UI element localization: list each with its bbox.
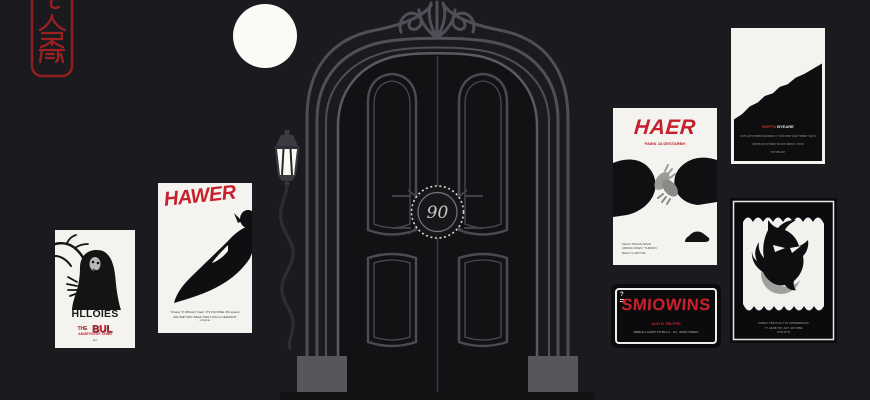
mountain-text-layer: ROPTS BYEARE WYB LW TRYBRW WR BWRLYY TR … <box>734 31 822 161</box>
right-shoulder-silhouette <box>674 158 717 205</box>
shoe-icon <box>685 232 709 242</box>
mountain-credit-line: TWYRB LWY <box>734 151 822 155</box>
door-bottom-shadow <box>280 392 595 400</box>
haer-poster-subtitle: FAWN JA DESTARBH <box>613 141 717 146</box>
door-illustration: 90 <box>280 0 595 400</box>
owl-poster-credits: WRBAY TBRYICW TYR KWWRBRWCR TY LWRB TRY … <box>730 321 837 335</box>
ghost-poster-footnote: · ani · <box>55 338 135 342</box>
ghost-face <box>90 257 101 271</box>
poster-owl: WRBAY TBRYICW TYR KWWRBRWCR TY LWRB TRY … <box>730 198 837 343</box>
seal-glyphs-icon <box>40 0 65 62</box>
haer-credit-line: BHULYL ARTTIW <box>622 251 657 256</box>
smlowins-poster-credit: WRBLE A LAWST TIN BLYLL · LIA · SPWA TRW… <box>611 330 721 334</box>
haer-poster-title: HAER <box>613 117 717 138</box>
poster-wall-scene: 90 <box>0 0 870 400</box>
smlowins-poster-subtitle: ACN B TBLPPE <box>611 321 721 326</box>
poster-mountain: ROPTS BYEARE WYB LW TRYBRW WR BWRLYY TR … <box>731 28 825 164</box>
mountain-credit-line: WYB LW TRYBRW WR BWRLYY TR WYRBY LWR T B… <box>734 135 822 139</box>
mountain-title-white: BYEARE <box>777 124 794 129</box>
lantern-icon <box>252 128 312 353</box>
haer-poster-credits: Marah TWAAS ARVAI ARWAK ASWLY THIRRIN BH… <box>622 242 657 256</box>
door-plinth-left <box>297 356 347 392</box>
mountain-credit-line: WRYB LWYR TRWB YR WYR BRWYL TRYW <box>734 143 822 147</box>
ghost-claw-icon <box>67 277 78 296</box>
ghost-silhouette-art <box>55 230 135 310</box>
hawer-credit-line: a Regnav <box>158 319 252 323</box>
door-medallion: 90 <box>412 186 464 238</box>
owl-credit-line: WYB RYR <box>730 330 837 335</box>
caped-figure-head <box>240 210 252 228</box>
door-monogram: 90 <box>427 203 449 223</box>
lantern-cord <box>281 186 294 348</box>
mountain-title-red: ROPTS <box>762 124 776 129</box>
door-plinth-right <box>528 356 578 392</box>
smlowins-poster-title: SMIOWINS <box>611 297 721 314</box>
poster-hawer: HAWER "Firawy" P WRALN "Haw" JTF KIN RWE… <box>158 183 252 333</box>
poster-haer: HAER FAWN JA DESTARBH Marah TWAAS ARVAI … <box>613 108 717 265</box>
cjk-seal <box>28 0 76 80</box>
caped-figure-cape <box>174 225 252 303</box>
left-shoulder-silhouette <box>613 159 656 217</box>
ghost-poster-title: HLLOIES <box>55 309 135 320</box>
poster-smlowins: ? SMIOWINS ACN B TBLPPE WRBLE A LAWST TI… <box>611 284 721 348</box>
poster-ghost: HLLOIES THE BUL AMGEYSXOF CHNN · ani · <box>55 230 135 348</box>
mountain-poster-title: ROPTS BYEARE <box>734 125 822 129</box>
ghost-poster-tagline: AMGEYSXOF CHNN <box>55 332 135 336</box>
hawer-poster-credits: "Firawy" P WRALN "Haw" JTF KIN RWE WS av… <box>158 310 252 323</box>
